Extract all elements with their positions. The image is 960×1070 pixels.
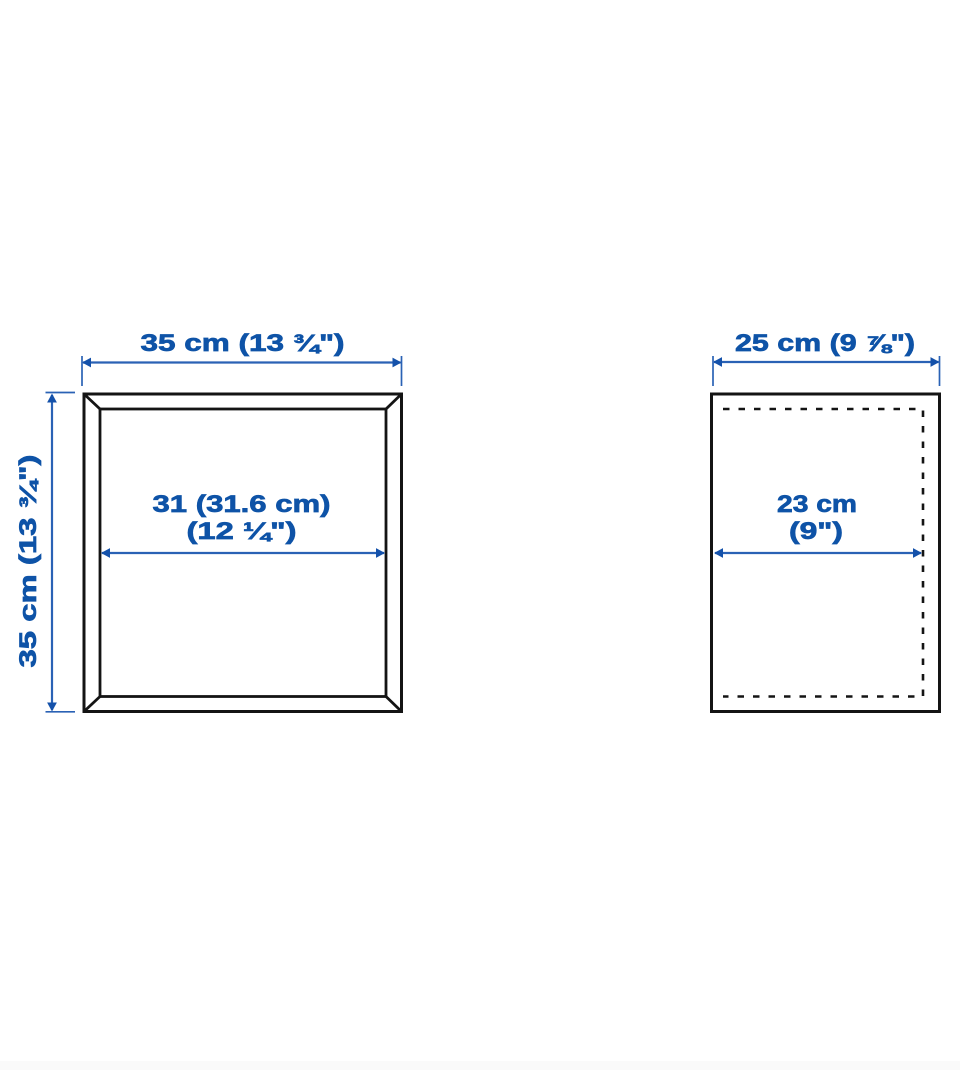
svg-text:35 cm (13 ¾"): 35 cm (13 ¾") bbox=[15, 455, 42, 668]
svg-text:23 cm: 23 cm bbox=[777, 491, 857, 518]
svg-text:(12 ¼"): (12 ¼") bbox=[187, 518, 297, 545]
svg-text:(9"): (9") bbox=[789, 518, 843, 545]
svg-text:35 cm (13 ¾"): 35 cm (13 ¾") bbox=[141, 330, 345, 357]
svg-text:25 cm (9 ⅞"): 25 cm (9 ⅞") bbox=[735, 330, 915, 357]
svg-text:31 (31.6 cm): 31 (31.6 cm) bbox=[153, 491, 331, 518]
